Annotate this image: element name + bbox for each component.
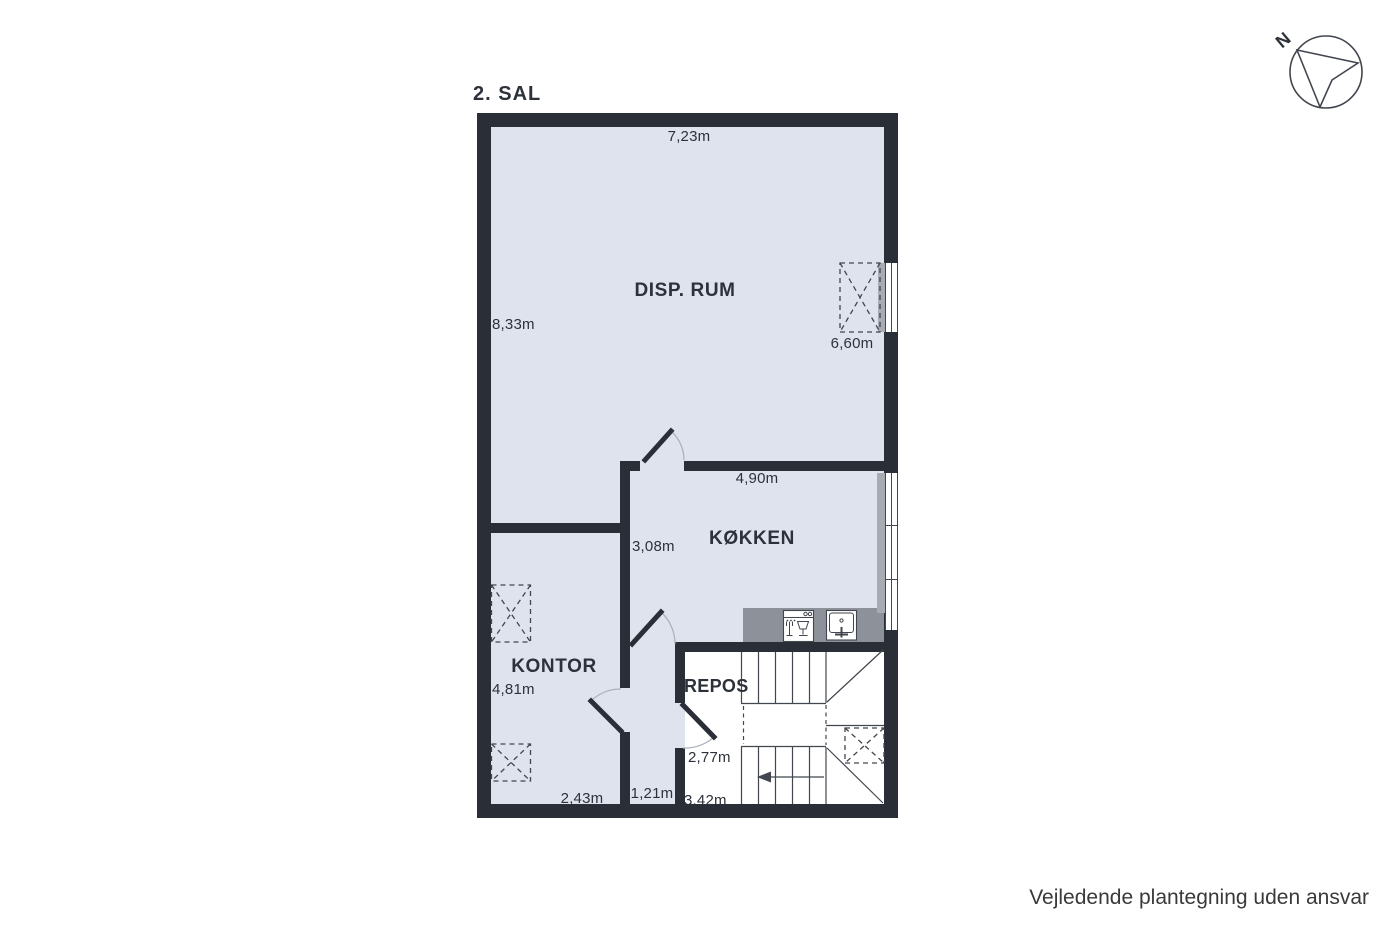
- floor-plan-page: 2. SAL: [0, 0, 1400, 933]
- floor-plan-drawing: [477, 113, 898, 818]
- dim-kokken-left: 3,08m: [632, 538, 675, 555]
- floor-title: 2. SAL: [473, 83, 541, 106]
- window-disp-rum: [878, 263, 898, 332]
- dim-hall-bottom: 1,21m: [631, 785, 674, 802]
- dim-repos-left: 2,77m: [688, 749, 731, 766]
- window-kokken: [877, 473, 898, 630]
- room-label-disp-rum: DISP. RUM: [634, 280, 735, 302]
- dim-kontor-left: 4,81m: [492, 681, 535, 698]
- dim-kontor-bottom: 2,43m: [561, 790, 604, 807]
- room-label-repos: REPOS: [684, 676, 749, 697]
- dim-repos-bottom: 3,42m: [684, 792, 727, 809]
- dishwasher-icon: [784, 611, 814, 642]
- dim-disp-rum-left: 8,33m: [492, 316, 535, 333]
- room-label-kontor: KONTOR: [511, 656, 597, 678]
- sink-icon: [827, 611, 857, 641]
- dim-kokken-top: 4,90m: [736, 470, 779, 487]
- room-label-kokken: KØKKEN: [709, 528, 795, 550]
- dim-disp-rum-right: 6,60m: [831, 335, 874, 352]
- dim-disp-rum-top: 7,23m: [668, 128, 711, 145]
- disclaimer-text: Vejledende plantegning uden ansvar: [1029, 886, 1369, 910]
